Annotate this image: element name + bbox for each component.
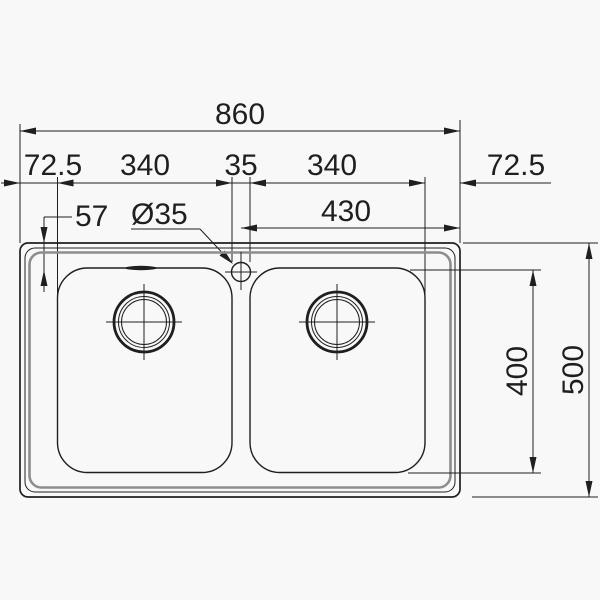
arrow-left-icon bbox=[241, 225, 257, 232]
arrow-down-icon bbox=[41, 227, 48, 243]
sink-rim bbox=[30, 253, 451, 488]
label-ledge-depth: 57 bbox=[75, 200, 108, 233]
dimension-bowl-depth: 400 bbox=[408, 270, 541, 473]
drain-right bbox=[299, 284, 375, 360]
overflow-slot bbox=[125, 266, 157, 270]
arrow-margin-right-icon bbox=[460, 180, 476, 187]
label-margin-right: 72.5 bbox=[487, 149, 545, 182]
dimension-ledge-depth: 57 bbox=[41, 200, 109, 292]
drain-left bbox=[106, 284, 182, 360]
label-tap-diameter: Ø35 bbox=[131, 198, 188, 231]
label-overall-depth: 500 bbox=[557, 345, 590, 395]
label-tap-gap: 35 bbox=[224, 149, 257, 182]
label-overall-width: 860 bbox=[215, 98, 265, 131]
arrow-up-icon bbox=[530, 270, 537, 286]
label-bowl-depth: 400 bbox=[501, 346, 534, 396]
arrow-down-icon bbox=[586, 481, 593, 497]
arrow-left-icon bbox=[20, 128, 36, 135]
label-bowl-width-right: 340 bbox=[307, 149, 357, 182]
dimension-tap-diameter: Ø35 bbox=[131, 198, 233, 264]
arrow-up-icon bbox=[586, 243, 593, 259]
label-half-width: 430 bbox=[321, 195, 371, 228]
arrow-down-icon bbox=[530, 457, 537, 473]
arrow-right-icon bbox=[444, 128, 460, 135]
arrow-margin-left-icon bbox=[4, 180, 20, 187]
label-margin-left: 72.5 bbox=[24, 149, 82, 182]
bowl-left-edge bbox=[58, 268, 233, 473]
label-bowl-width-left: 340 bbox=[120, 149, 170, 182]
drawing-canvas: 860 72.5 340 35 340 72.5 430 57 Ø bbox=[0, 0, 600, 600]
dimension-half-width: 430 bbox=[241, 195, 460, 232]
arrow-up-icon bbox=[41, 270, 48, 286]
tap-hole bbox=[225, 252, 257, 290]
arrow-right-icon bbox=[444, 225, 460, 232]
arrow-bowl2-right-icon bbox=[409, 180, 425, 187]
sink-technical-drawing: 860 72.5 340 35 340 72.5 430 57 Ø bbox=[0, 0, 600, 600]
sink-inner-edge bbox=[25, 248, 455, 492]
